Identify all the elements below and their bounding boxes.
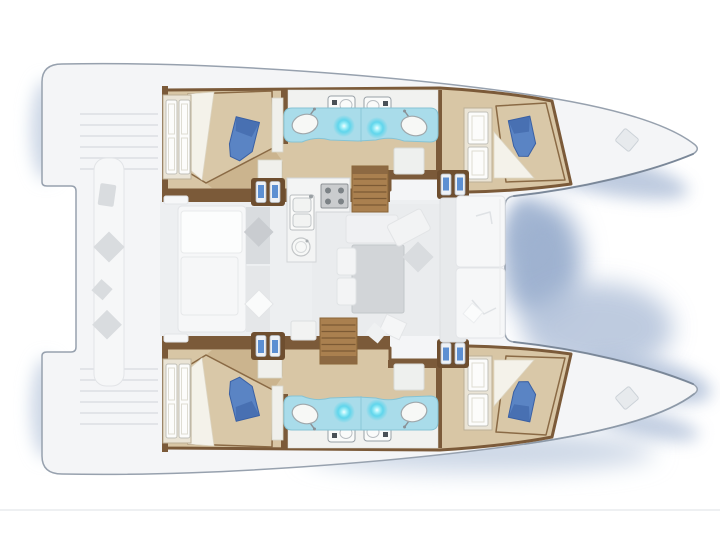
lower-aft-entry-steps bbox=[251, 332, 285, 360]
wardrobe-door bbox=[179, 364, 190, 438]
shower-light bbox=[333, 115, 355, 137]
upper-aft-entry-steps bbox=[251, 178, 285, 206]
upper-aft-cabinet bbox=[258, 160, 282, 180]
lower-aft-cabinet bbox=[258, 358, 282, 378]
upper-hull-landing bbox=[164, 196, 188, 204]
shower-tray bbox=[394, 364, 424, 390]
stairs-upper-hull bbox=[352, 166, 388, 212]
daybed-pillow bbox=[181, 257, 238, 315]
forward-cockpit bbox=[456, 196, 505, 338]
wardrobe-door bbox=[468, 359, 488, 391]
seat-cushion bbox=[337, 248, 356, 275]
daybed-pillow bbox=[181, 211, 242, 253]
aft-daybed bbox=[178, 206, 274, 332]
shower-light bbox=[333, 401, 355, 423]
bench-cushion bbox=[98, 183, 117, 207]
lower-hull-landing bbox=[164, 334, 188, 342]
salon-cabinet bbox=[291, 321, 316, 340]
shower-light bbox=[366, 399, 388, 421]
lower-aft-nightstand bbox=[272, 386, 283, 440]
shadow-forward-cockpit bbox=[507, 198, 543, 258]
stove bbox=[321, 184, 348, 208]
wardrobe-door bbox=[166, 364, 177, 438]
galley-round-sink bbox=[292, 238, 310, 256]
forward-bench-upper bbox=[456, 196, 505, 267]
wardrobe-door bbox=[166, 100, 177, 174]
upper-aft-nightstand bbox=[272, 98, 283, 152]
wardrobe-door bbox=[468, 394, 488, 426]
shower-tray bbox=[394, 148, 424, 174]
catamaran-floorplan bbox=[0, 0, 720, 540]
wardrobe-door bbox=[179, 100, 190, 174]
seat-cushion bbox=[337, 278, 356, 305]
dining-table bbox=[352, 245, 404, 313]
shower-light bbox=[366, 117, 388, 139]
wardrobe-door bbox=[468, 147, 488, 179]
wardrobe-door bbox=[468, 112, 488, 144]
stairs-lower-hull bbox=[320, 318, 357, 364]
lower-aft-cabin bbox=[163, 350, 283, 447]
galley-double-sink bbox=[290, 195, 314, 231]
floorplan-page bbox=[0, 0, 720, 540]
upper-fwd-entry-steps bbox=[437, 170, 469, 199]
lower-fwd-entry-steps bbox=[437, 339, 469, 368]
forward-bench-lower bbox=[456, 268, 505, 338]
upper-aft-cabin bbox=[163, 91, 283, 188]
